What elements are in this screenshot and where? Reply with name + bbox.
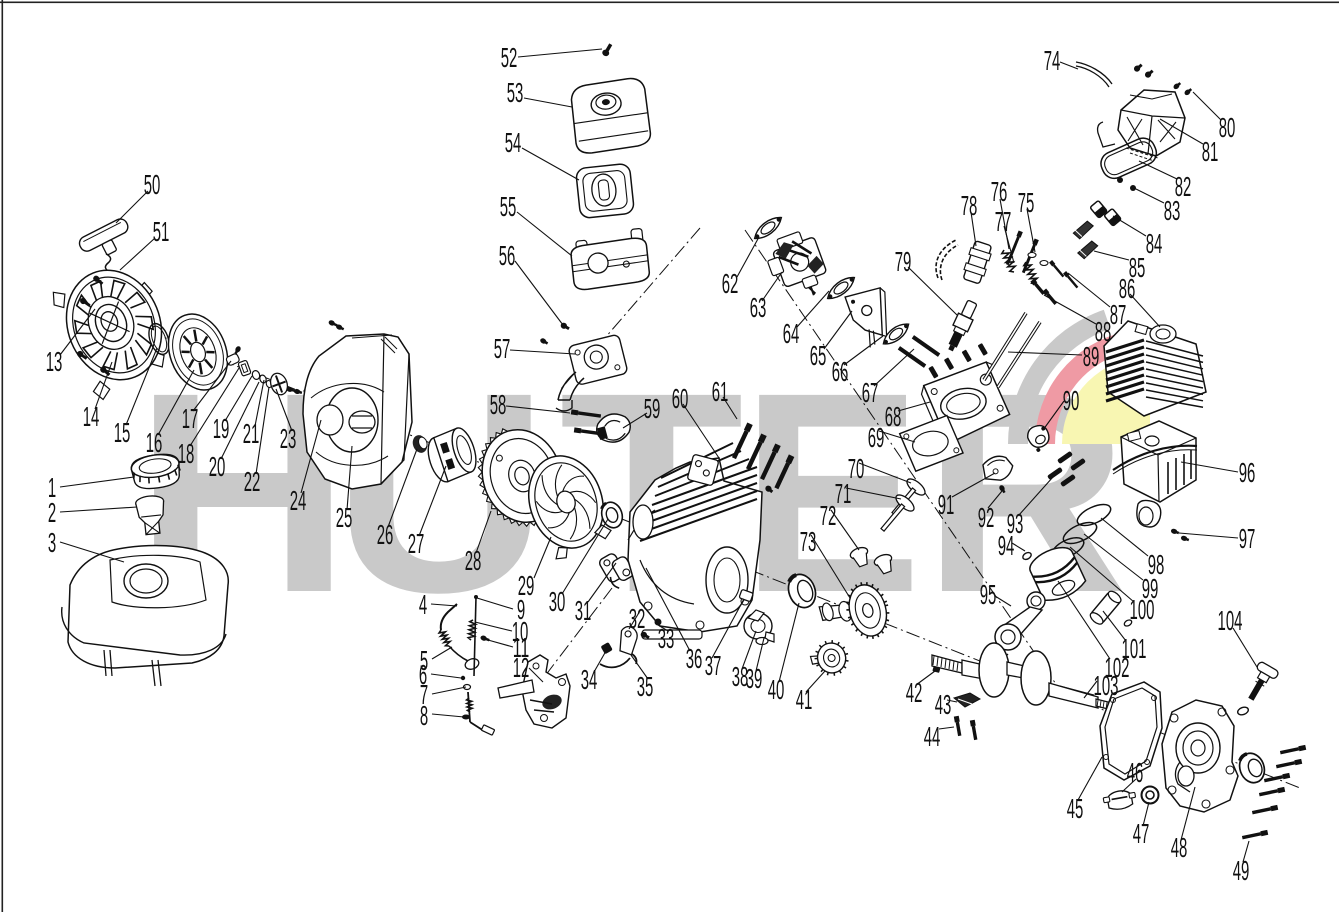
svg-text:92: 92 — [978, 502, 995, 533]
svg-text:32: 32 — [629, 603, 646, 634]
svg-text:69: 69 — [868, 422, 885, 453]
svg-text:12: 12 — [513, 652, 530, 683]
svg-text:67: 67 — [862, 377, 879, 408]
svg-text:96: 96 — [1239, 457, 1256, 488]
svg-text:51: 51 — [153, 216, 170, 247]
svg-text:40: 40 — [768, 674, 785, 705]
svg-text:45: 45 — [1067, 793, 1084, 824]
svg-text:50: 50 — [144, 169, 161, 200]
svg-text:64: 64 — [783, 318, 800, 349]
svg-text:25: 25 — [336, 502, 353, 533]
svg-text:100: 100 — [1130, 594, 1155, 625]
svg-text:60: 60 — [672, 383, 689, 414]
svg-text:61: 61 — [712, 376, 729, 407]
svg-text:75: 75 — [1018, 187, 1035, 218]
svg-text:84: 84 — [1146, 228, 1163, 259]
svg-text:80: 80 — [1219, 112, 1236, 143]
svg-text:18: 18 — [178, 438, 195, 469]
svg-text:63: 63 — [750, 292, 767, 323]
svg-text:46: 46 — [1127, 757, 1144, 788]
svg-text:65: 65 — [810, 340, 827, 371]
svg-text:77: 77 — [995, 206, 1012, 237]
svg-text:21: 21 — [243, 418, 260, 449]
svg-text:56: 56 — [499, 240, 516, 271]
svg-text:17: 17 — [182, 403, 199, 434]
svg-text:58: 58 — [490, 389, 507, 420]
svg-text:104: 104 — [1218, 605, 1243, 636]
svg-text:47: 47 — [1133, 818, 1150, 849]
svg-text:54: 54 — [505, 127, 522, 158]
svg-text:37: 37 — [705, 650, 722, 681]
svg-text:83: 83 — [1164, 195, 1181, 226]
svg-text:78: 78 — [961, 190, 978, 221]
svg-text:68: 68 — [885, 401, 902, 432]
svg-text:103: 103 — [1094, 670, 1119, 701]
svg-text:87: 87 — [1110, 299, 1127, 330]
svg-text:73: 73 — [800, 526, 817, 557]
svg-text:16: 16 — [146, 427, 163, 458]
svg-text:42: 42 — [906, 677, 923, 708]
svg-text:79: 79 — [895, 246, 912, 277]
svg-text:35: 35 — [637, 671, 654, 702]
svg-text:26: 26 — [377, 519, 394, 550]
svg-text:24: 24 — [290, 485, 307, 516]
svg-text:29: 29 — [518, 570, 535, 601]
svg-text:15: 15 — [114, 417, 131, 448]
svg-text:23: 23 — [280, 423, 297, 454]
svg-text:44: 44 — [924, 721, 941, 752]
svg-text:71: 71 — [835, 478, 852, 509]
svg-text:81: 81 — [1202, 136, 1219, 167]
svg-text:43: 43 — [935, 689, 952, 720]
svg-text:27: 27 — [408, 528, 425, 559]
svg-text:53: 53 — [507, 77, 524, 108]
svg-text:30: 30 — [549, 586, 566, 617]
svg-text:55: 55 — [500, 191, 517, 222]
svg-text:52: 52 — [501, 42, 518, 73]
svg-text:20: 20 — [209, 451, 226, 482]
svg-text:28: 28 — [465, 545, 482, 576]
svg-text:59: 59 — [644, 393, 661, 424]
svg-text:22: 22 — [244, 466, 261, 497]
svg-text:41: 41 — [796, 684, 813, 715]
svg-text:8: 8 — [420, 700, 428, 731]
svg-text:34: 34 — [581, 664, 598, 695]
svg-text:33: 33 — [658, 623, 675, 654]
svg-text:31: 31 — [575, 595, 592, 626]
svg-text:94: 94 — [998, 530, 1015, 561]
svg-text:95: 95 — [980, 579, 997, 610]
svg-text:66: 66 — [832, 356, 849, 387]
svg-text:76: 76 — [991, 176, 1008, 207]
svg-text:62: 62 — [722, 268, 739, 299]
svg-text:49: 49 — [1233, 855, 1250, 886]
svg-text:3: 3 — [48, 527, 56, 558]
svg-text:2: 2 — [48, 497, 56, 528]
svg-text:36: 36 — [686, 643, 703, 674]
svg-text:48: 48 — [1171, 832, 1188, 863]
svg-text:4: 4 — [419, 589, 427, 620]
svg-text:19: 19 — [213, 413, 230, 444]
svg-text:89: 89 — [1083, 341, 1100, 372]
svg-text:39: 39 — [746, 663, 763, 694]
svg-text:72: 72 — [820, 500, 837, 531]
svg-text:13: 13 — [46, 346, 63, 377]
svg-text:74: 74 — [1044, 45, 1061, 76]
svg-text:14: 14 — [83, 401, 100, 432]
svg-text:91: 91 — [938, 489, 955, 520]
svg-text:57: 57 — [494, 333, 511, 364]
svg-text:90: 90 — [1063, 385, 1080, 416]
svg-text:97: 97 — [1239, 523, 1256, 554]
